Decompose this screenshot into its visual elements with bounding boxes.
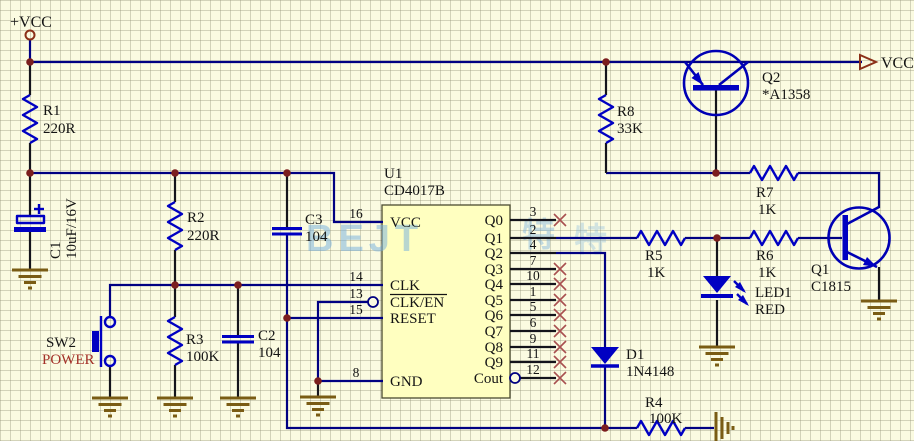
led-ref: LED1	[755, 285, 792, 301]
pin-number: 9	[530, 331, 537, 346]
pin-number: 2	[530, 222, 537, 237]
schematic-drawing: BEJT 特 特	[0, 0, 914, 441]
inversion-bubble-cout	[510, 373, 520, 383]
pin-name-q5: Q5	[485, 293, 503, 309]
capacitor-ref: C3	[305, 212, 323, 228]
ground-symbol-c2	[220, 398, 256, 416]
transistor-q1-npn: Q1 C1815	[811, 207, 890, 295]
resistor-value: 1K	[758, 202, 777, 218]
resistor-ref: R3	[186, 332, 204, 348]
pin-number: 3	[530, 204, 537, 219]
terminal-arrow-icon	[860, 55, 876, 69]
pin-number: 16	[349, 206, 363, 221]
ground-symbol-sw2	[92, 398, 128, 416]
diode-d1: D1 1N4148	[591, 347, 674, 380]
pin-number: 6	[530, 315, 537, 330]
ic-ref: U1	[384, 166, 402, 182]
resistor-r6: R6 1K	[750, 231, 798, 281]
transistor-value: *A1358	[762, 87, 810, 103]
pin-number: 11	[527, 346, 540, 361]
diode-value: 1N4148	[626, 364, 674, 380]
pin-name-q4: Q4	[485, 277, 504, 293]
pin-number: 13	[349, 286, 363, 301]
ground-symbol-ic	[300, 381, 336, 415]
capacitor-value: 104	[258, 345, 281, 361]
resistor-r1: R1 220R	[23, 95, 76, 143]
pin-name-q9: Q9	[485, 355, 503, 371]
pin-name-q0: Q0	[485, 213, 503, 229]
pin-name-cout: Cout	[474, 371, 504, 387]
transistor-value: C1815	[811, 279, 851, 295]
pin-number: 8	[353, 365, 360, 380]
schematic-canvas: BEJT 特 特	[0, 0, 914, 441]
resistor-ref: R8	[617, 104, 635, 120]
resistor-value: 220R	[43, 121, 76, 137]
pin-number: 14	[349, 269, 363, 284]
ic-part-number: CD4017B	[384, 183, 445, 199]
resistor-value: 1K	[758, 265, 777, 281]
pin-name-clk: CLK	[390, 278, 420, 294]
pin-number: 12	[526, 362, 540, 377]
pin-number: 4	[530, 237, 537, 252]
pin-name-gnd: GND	[390, 374, 423, 390]
resistor-ref: R5	[645, 248, 663, 264]
inversion-bubble-clk-en	[368, 297, 378, 307]
led-led1: LED1 RED	[701, 276, 792, 318]
button-cap	[92, 331, 99, 352]
diode-ref: D1	[626, 347, 644, 363]
vcc-input-label: +VCC	[10, 14, 52, 31]
ground-symbol-led1	[699, 347, 735, 365]
base-bar	[693, 85, 739, 91]
pin-name-vcc: VCC	[390, 215, 421, 231]
ground-symbol-c1	[12, 270, 48, 288]
watermark-cjk-1: 特	[522, 216, 555, 253]
terminal-circle-icon	[26, 31, 35, 40]
pin-number: 1	[530, 284, 537, 299]
ground-symbol-r3	[157, 398, 193, 416]
transistor-ref: Q2	[762, 70, 780, 86]
switch-label: POWER	[42, 352, 95, 368]
resistor-r8: R8 33K	[599, 95, 643, 143]
transistor-ref: Q1	[811, 262, 829, 278]
led-value: RED	[755, 302, 785, 318]
ground-symbol-r4-sideways	[716, 412, 733, 441]
switch-ref: SW2	[46, 335, 76, 351]
pin-name-clk-en: CLK/EN	[390, 295, 444, 311]
vcc-output-label: VCC	[881, 55, 914, 72]
vcc-output-terminal: VCC	[860, 55, 914, 72]
pin-name-q8: Q8	[485, 340, 503, 356]
resistor-r4: R4 100K	[637, 395, 685, 435]
resistor-value: 1K	[647, 265, 666, 281]
pin-name-q2: Q2	[485, 246, 503, 262]
capacitor-ref: C2	[258, 328, 276, 344]
resistor-ref: R6	[756, 248, 774, 264]
resistor-r2: R2 220R	[168, 202, 220, 250]
resistor-r5: R5 1K	[637, 231, 685, 281]
pin-name-q3: Q3	[485, 262, 503, 278]
pin-number: 5	[530, 299, 537, 314]
emitter-arrow	[863, 257, 877, 267]
capacitor-c3: C3 104	[272, 212, 328, 245]
resistor-value: 33K	[617, 121, 643, 137]
pin-name-reset: RESET	[390, 311, 436, 327]
resistor-r7: R7 1K	[750, 166, 798, 218]
resistor-value: 100K	[186, 349, 220, 365]
resistor-r3: R3 100K	[168, 317, 220, 365]
pin-name-q7: Q7	[485, 324, 504, 340]
transistor-q2-pnp: Q2 *A1358	[684, 51, 810, 115]
capacitor-ref: C1	[48, 241, 64, 259]
resistor-value: 220R	[187, 228, 220, 244]
pin-name-q1: Q1	[485, 231, 503, 247]
capacitor-value: 10uF/16V	[64, 198, 80, 259]
resistor-ref: R7	[756, 185, 774, 201]
capacitor-c2: C2 104	[222, 328, 281, 361]
pin-number: 10	[526, 268, 540, 283]
ground-symbol-q1	[861, 301, 897, 319]
pin-name-q6: Q6	[485, 308, 504, 324]
pushbutton-sw2: SW2 POWER	[42, 316, 115, 368]
resistor-ref: R2	[187, 210, 205, 226]
resistor-value: 100K	[649, 411, 683, 427]
capacitor-c1: C1 10uF/16V	[14, 198, 80, 259]
vcc-input-terminal: +VCC	[10, 14, 52, 40]
capacitor-value: 104	[305, 229, 328, 245]
resistor-ref: R1	[43, 103, 61, 119]
pin-number: 7	[530, 253, 537, 268]
resistor-ref: R4	[645, 395, 663, 411]
pin-number: 15	[349, 302, 363, 317]
